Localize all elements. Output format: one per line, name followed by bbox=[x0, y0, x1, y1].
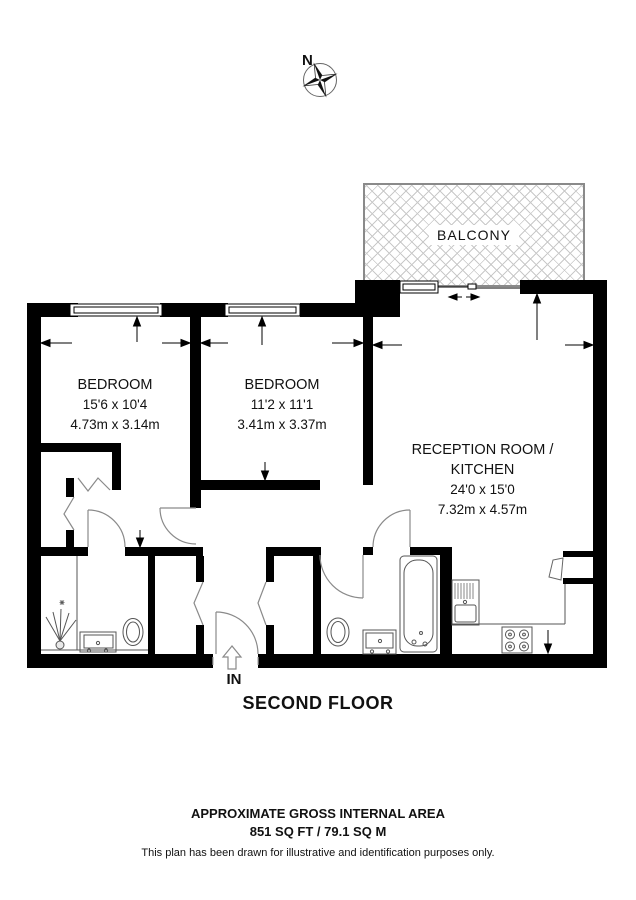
bedroom1-label: BEDROOM 15'6 x 10'4 4.73m x 3.14m bbox=[40, 375, 190, 435]
toilet-icon bbox=[123, 619, 143, 646]
bedroom1-window-icon bbox=[70, 304, 162, 316]
vanity-sink-icon bbox=[363, 630, 396, 654]
footer-area-value: 851 SQ FT / 79.1 SQ M bbox=[0, 823, 636, 841]
room-dim-imperial: 24'0 x 15'0 bbox=[390, 480, 575, 500]
bifold-door-icon bbox=[78, 478, 110, 491]
room-dim-imperial: 15'6 x 10'4 bbox=[40, 395, 190, 415]
room-dim-metric: 4.73m x 3.14m bbox=[40, 415, 190, 435]
vanity-sink-icon bbox=[80, 632, 116, 652]
bifold-door-icon bbox=[64, 497, 74, 530]
room-dim-imperial: 11'2 x 11'1 bbox=[207, 395, 357, 415]
room-dim-metric: 7.32m x 4.57m bbox=[390, 500, 575, 520]
bedroom2-window-icon bbox=[225, 304, 300, 316]
bedroom2-label: BEDROOM 11'2 x 11'1 3.41m x 3.37m bbox=[207, 375, 357, 435]
room-name: RECEPTION ROOM / bbox=[390, 440, 575, 460]
shower-icon bbox=[46, 600, 76, 649]
cupboard-door-icon bbox=[549, 558, 563, 580]
balcony-sliding-door-icon bbox=[400, 281, 520, 293]
bathtub-icon bbox=[400, 556, 437, 652]
bathroom2-door-arc bbox=[320, 555, 363, 598]
in-arrow-icon bbox=[223, 646, 241, 669]
footer-area-heading: APPROXIMATE GROSS INTERNAL AREA bbox=[0, 805, 636, 823]
reception-label: RECEPTION ROOM / KITCHEN 24'0 x 15'0 7.3… bbox=[390, 440, 575, 520]
entrance-in-label: IN bbox=[210, 671, 258, 688]
bedroom2-door-arc bbox=[160, 508, 196, 544]
room-dim-metric: 3.41m x 3.37m bbox=[207, 415, 357, 435]
fixtures-layer bbox=[41, 556, 565, 654]
compass-north-label: N bbox=[302, 52, 313, 69]
room-name: KITCHEN bbox=[390, 460, 575, 480]
hob-icon bbox=[502, 627, 532, 653]
bifold-door-icon bbox=[258, 582, 266, 625]
footer-disclaimer: This plan has been drawn for illustrativ… bbox=[0, 847, 636, 859]
room-name: BEDROOM bbox=[40, 375, 190, 395]
bathroom1-door-arc bbox=[88, 510, 125, 547]
room-name: BEDROOM bbox=[207, 375, 357, 395]
bifold-door-icon bbox=[194, 582, 203, 625]
toilet-icon bbox=[327, 618, 349, 646]
floorplan-page: BALCONY bbox=[0, 0, 636, 900]
entrance-door-arc bbox=[216, 612, 258, 654]
kitchen-sink-icon bbox=[452, 580, 479, 625]
footer: APPROXIMATE GROSS INTERNAL AREA 851 SQ F… bbox=[0, 805, 636, 859]
floor-title: SECOND FLOOR bbox=[0, 693, 636, 714]
